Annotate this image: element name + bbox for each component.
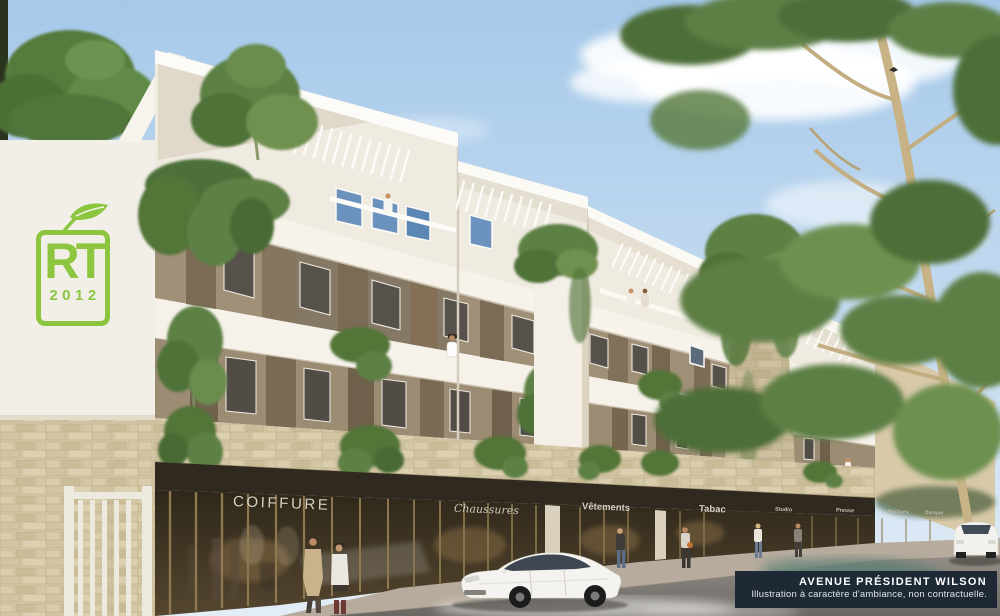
caption-plate: AVENUE PRÉSIDENT WILSON Illustration à c…	[735, 571, 997, 608]
shop-sign-small-3: Marques	[888, 509, 909, 516]
shop-sign-tabac: Tabac	[699, 503, 726, 515]
shop-sign-small-1: Studio	[775, 507, 792, 514]
architectural-rendering: RT 2012 COIFFURE Chaussures Vêtements Ta…	[0, 0, 1000, 616]
render-scene	[0, 0, 1000, 616]
rt-logo-frame: RT 2012	[36, 230, 110, 326]
rt2012-eco-label: RT 2012	[34, 203, 134, 343]
caption-title: AVENUE PRÉSIDENT WILSON	[735, 576, 987, 588]
shop-sign-small-4: Banque	[925, 510, 944, 517]
parked-white-car	[949, 522, 1000, 566]
leaf-icon	[56, 203, 114, 233]
caption-subtitle: Illustration à caractère d'ambiance, non…	[735, 589, 987, 600]
rt-logo-year: 2012	[41, 287, 105, 304]
shop-sign-small-2: Presse	[836, 508, 854, 515]
shop-sign-chaussures: Chaussures	[454, 502, 519, 517]
shop-sign-vetements: Vêtements	[582, 501, 630, 514]
rt-logo-text: RT	[42, 237, 105, 286]
